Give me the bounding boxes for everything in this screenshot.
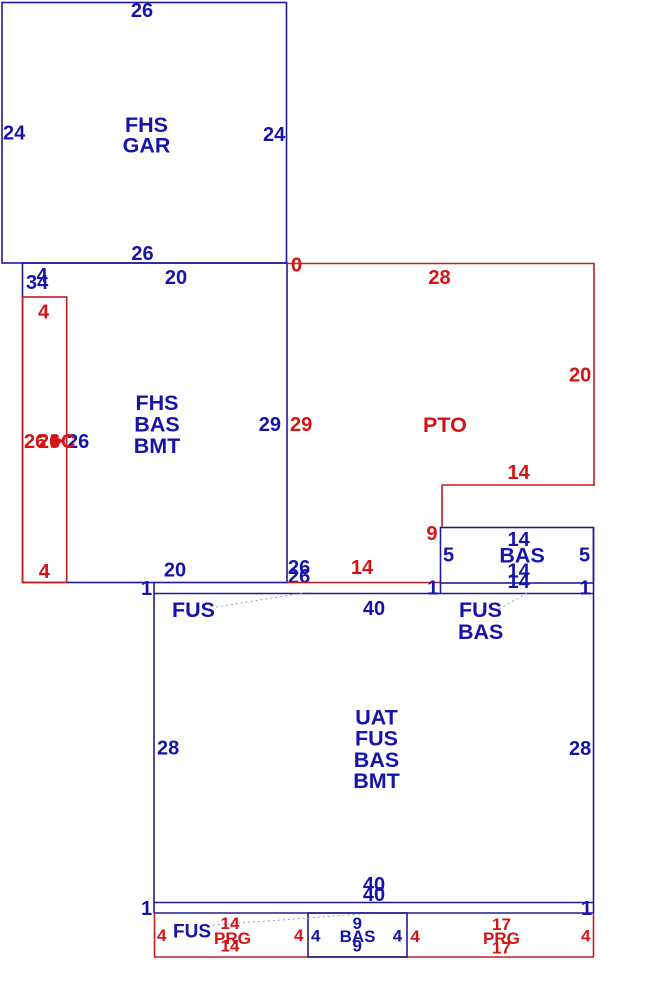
svg-text:4: 4 [311,926,321,945]
svg-text:FUS: FUS [173,922,211,943]
svg-text:17: 17 [492,939,511,958]
svg-text:BMT: BMT [134,434,181,458]
svg-text:40: 40 [363,598,385,620]
svg-text:BAS: BAS [134,413,179,437]
svg-text:BMT: BMT [353,769,400,793]
svg-text:26: 26 [131,0,153,22]
svg-text:5: 5 [579,545,590,567]
svg-text:20: 20 [164,560,186,582]
svg-text:14: 14 [351,557,374,579]
svg-text:1: 1 [427,578,438,600]
svg-text:4: 4 [157,926,167,945]
svg-text:C: C [61,431,75,453]
svg-text:14: 14 [508,462,531,484]
svg-text:28: 28 [569,738,591,760]
svg-text:4: 4 [294,926,304,945]
svg-text:1: 1 [580,578,591,600]
svg-text:26: 26 [131,243,153,265]
svg-text:1: 1 [581,898,592,920]
svg-text:9: 9 [353,937,362,956]
svg-text:40: 40 [363,884,385,906]
svg-text:BAS: BAS [458,620,503,644]
svg-text:4: 4 [393,926,403,945]
svg-text:24: 24 [3,123,26,145]
svg-text:28: 28 [428,267,450,289]
svg-text:5: 5 [443,545,454,567]
svg-text:1: 1 [141,578,152,600]
svg-text:4: 4 [39,561,51,583]
svg-text:FUS: FUS [459,598,502,622]
svg-text:4: 4 [410,927,420,946]
svg-text:20: 20 [569,365,591,387]
svg-text:29: 29 [290,414,312,436]
svg-text:FUS: FUS [172,598,215,622]
svg-text:PTO: PTO [423,413,467,437]
svg-text:FHS: FHS [136,391,179,415]
svg-text:29: 29 [259,414,281,436]
svg-text:4: 4 [581,927,591,946]
svg-text:28: 28 [157,738,179,760]
svg-text:4: 4 [37,265,49,287]
svg-text:0: 0 [291,255,302,277]
svg-text:24: 24 [263,124,286,146]
svg-text:14: 14 [221,937,240,956]
svg-text:9: 9 [426,523,437,545]
svg-text:1: 1 [141,898,152,920]
svg-text:20: 20 [165,267,187,289]
svg-text:4: 4 [38,302,50,324]
svg-text:GAR: GAR [123,134,171,158]
svg-text:14: 14 [508,571,531,593]
svg-text:26: 26 [288,566,310,588]
